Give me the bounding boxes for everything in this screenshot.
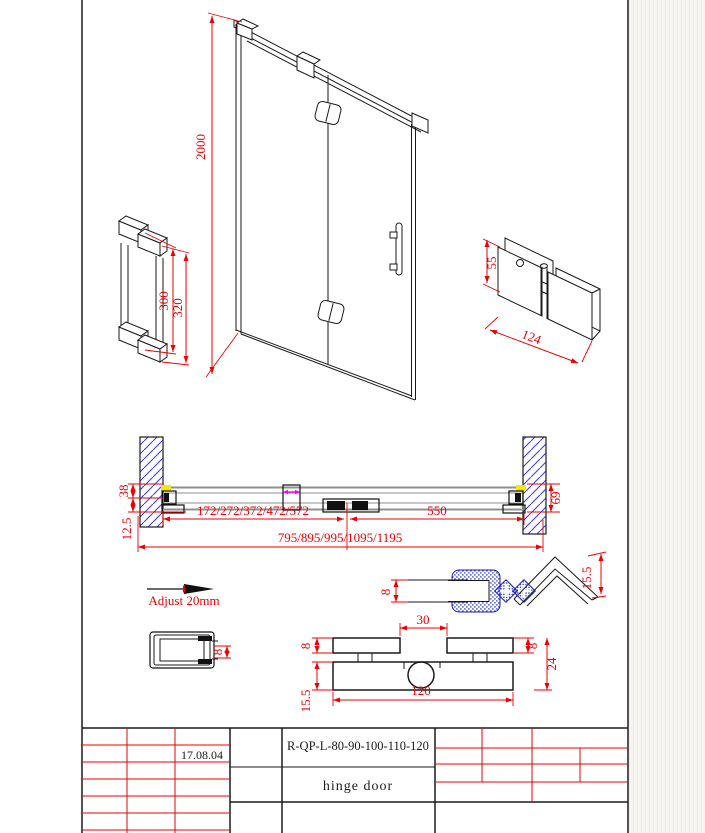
dim-door-height: 2000 xyxy=(193,134,208,160)
dim-hingeplan-15-5: 15.5 xyxy=(298,690,313,713)
plan-section-view: 38 12.5 69 172/272/372/472/572 550 795/8… xyxy=(116,437,563,552)
magnet-seal-detail: 8 15.5 xyxy=(378,552,606,612)
adjust-label: Adjust 20mm xyxy=(148,593,219,608)
dim-plan-550: 550 xyxy=(427,503,447,518)
dim-hingeplan-24: 24 xyxy=(544,657,559,671)
dim-seal-8: 8 xyxy=(378,589,393,596)
hinge-detail: 55 124 xyxy=(483,238,600,363)
title-block-product-name: hinge door xyxy=(323,779,393,794)
wall-profile-detail: 8 xyxy=(150,632,231,668)
dim-hinge-55: 55 xyxy=(484,257,499,270)
title-block-revision-grid xyxy=(82,728,230,833)
title-block-right-grid xyxy=(435,728,628,802)
title-block-model-code: R-QP-L-80-90-100-110-120 xyxy=(287,739,429,753)
dim-hingeplan-30: 30 xyxy=(417,612,430,627)
dim-handle-320: 320 xyxy=(170,298,185,318)
title-block: 17.08.04 R-QP-L-80-90-100-110-120 hinge … xyxy=(82,728,628,833)
wall-left-hatched xyxy=(140,437,163,527)
dim-handle-300: 300 xyxy=(156,291,171,311)
adjust-note: Adjust 20mm xyxy=(147,584,220,608)
dim-plan-38: 38 xyxy=(116,485,131,498)
dim-wall-profile-8: 8 xyxy=(210,649,225,656)
dim-plan-69: 69 xyxy=(548,492,563,505)
dim-plan-12-5: 12.5 xyxy=(119,518,134,541)
fitting-yellow-right xyxy=(516,485,526,491)
page-border xyxy=(82,0,628,833)
door-isometric-view: 2000 xyxy=(193,13,428,400)
dim-seal-15-5: 15.5 xyxy=(579,567,594,590)
dim-hinge-124: 124 xyxy=(520,326,544,347)
drawing-canvas: 2000 300 32 xyxy=(0,0,705,833)
dim-plan-door-widths: 172/272/372/472/572 xyxy=(197,503,309,518)
title-block-date: 17.08.04 xyxy=(181,748,223,762)
drawing-page: 2000 300 32 xyxy=(0,0,705,833)
dim-hingeplan-8-right: 8 xyxy=(525,643,540,650)
fitting-yellow-left xyxy=(161,485,171,491)
dim-hingeplan-120: 120 xyxy=(411,683,431,698)
handle-detail: 300 320 xyxy=(119,216,189,365)
dim-plan-total-widths: 795/895/995/1095/1195 xyxy=(278,530,402,545)
wall-right-hatched xyxy=(523,437,546,534)
hinge-plan-detail: 30 8 15.5 120 xyxy=(298,612,559,712)
dim-hingeplan-8-left: 8 xyxy=(298,643,313,650)
